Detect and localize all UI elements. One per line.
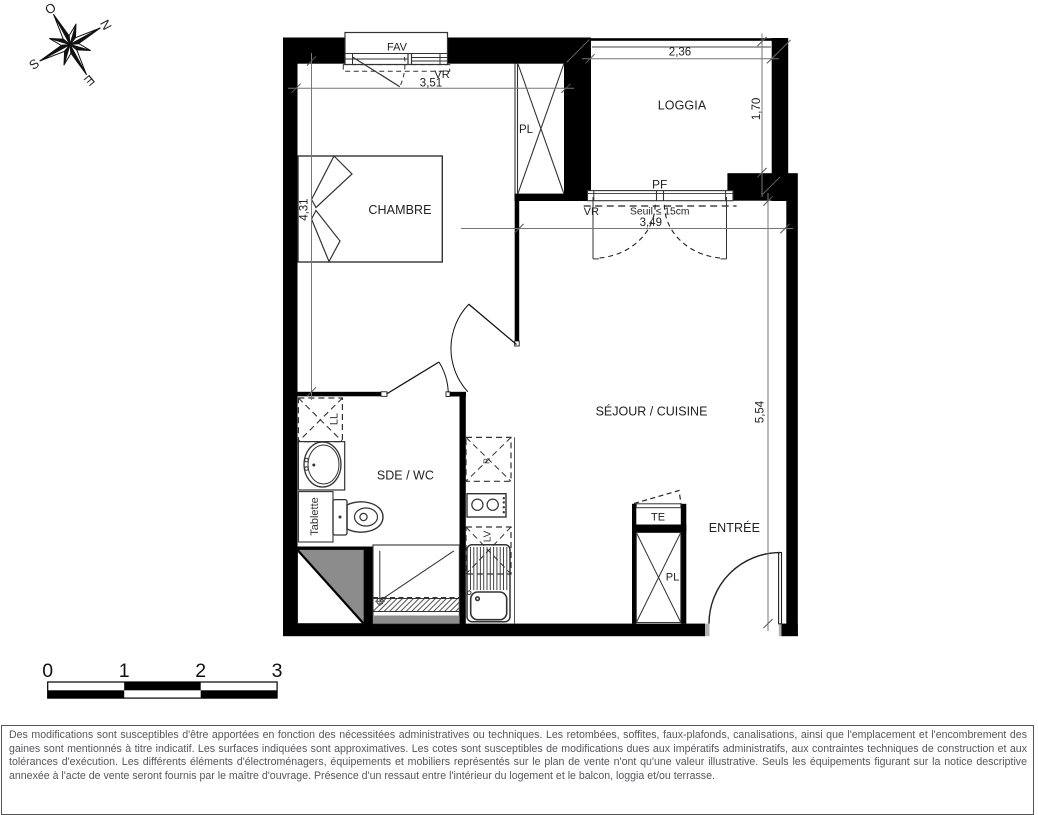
svg-text:LL: LL (329, 413, 341, 425)
svg-text:FAV: FAV (387, 42, 408, 54)
svg-text:O: O (42, 0, 58, 18)
svg-text:R: R (483, 458, 492, 464)
svg-text:1: 1 (119, 660, 130, 682)
svg-text:SDE / WC: SDE / WC (377, 469, 434, 483)
svg-text:5,54: 5,54 (755, 400, 767, 423)
svg-text:LV: LV (483, 530, 494, 542)
svg-text:ENTRÉE: ENTRÉE (709, 520, 760, 535)
svg-text:PL: PL (666, 572, 679, 584)
svg-text:E: E (81, 72, 98, 89)
svg-text:CHAMBRE: CHAMBRE (368, 203, 431, 217)
svg-text:PL: PL (519, 124, 534, 136)
svg-text:S: S (26, 55, 42, 72)
svg-text:TE: TE (651, 512, 665, 524)
svg-text:Tablette: Tablette (309, 497, 321, 536)
svg-text:2: 2 (195, 660, 206, 682)
svg-text:PF: PF (652, 177, 667, 191)
svg-text:4,31: 4,31 (299, 198, 311, 220)
svg-text:3: 3 (272, 660, 283, 682)
svg-text:3,49: 3,49 (640, 217, 662, 229)
svg-text:0: 0 (42, 660, 53, 682)
svg-text:1,70: 1,70 (751, 98, 763, 120)
svg-text:VR: VR (584, 206, 599, 218)
svg-text:LOGGIA: LOGGIA (658, 98, 707, 112)
svg-text:N: N (97, 17, 115, 32)
svg-text:3,51: 3,51 (420, 77, 442, 89)
svg-text:SÉJOUR / CUISINE: SÉJOUR / CUISINE (596, 404, 708, 419)
svg-text:2,36: 2,36 (669, 47, 691, 59)
